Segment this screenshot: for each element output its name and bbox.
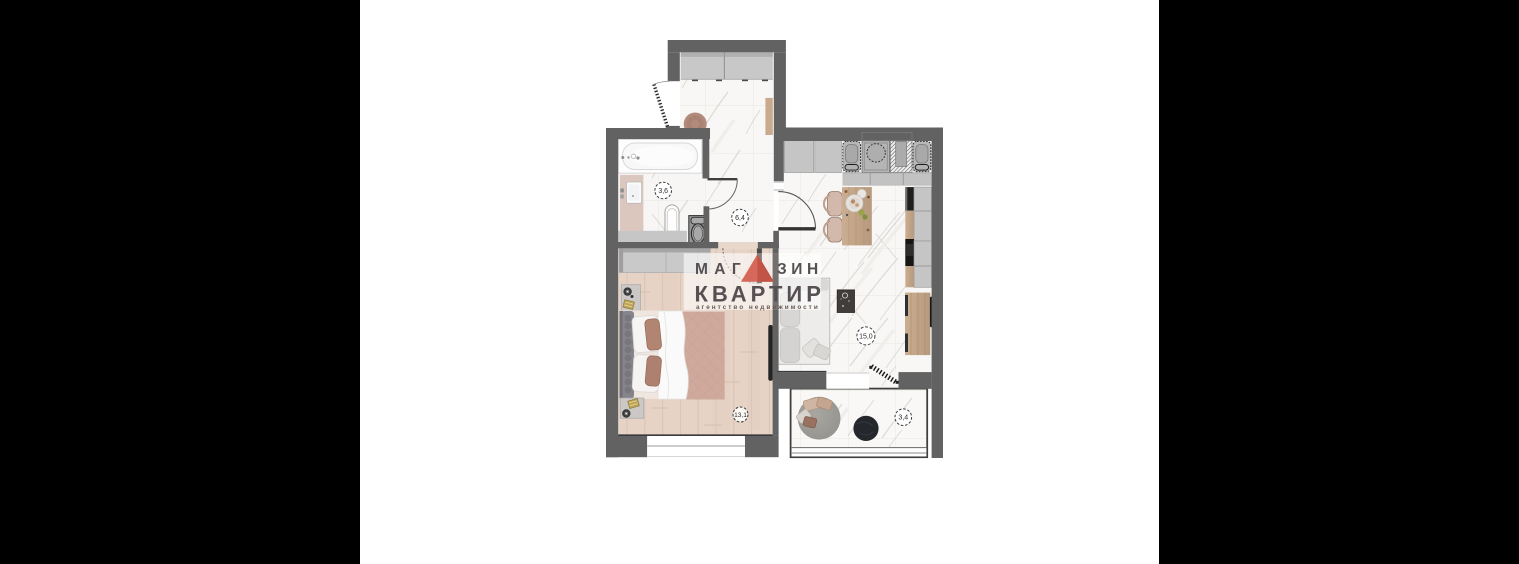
svg-text:3,6: 3,6 [658,188,668,195]
svg-text:15,0: 15,0 [859,334,873,341]
svg-text:КВАРТИР: КВАРТИР [695,282,825,307]
svg-text:6,4: 6,4 [735,215,745,222]
svg-text:13,1: 13,1 [734,412,747,419]
svg-text:МАГ: МАГ [695,261,747,278]
svg-text:ЗИН: ЗИН [777,261,823,278]
svg-text:агентство недвижимости: агентство недвижимости [696,304,820,311]
svg-text:3,4: 3,4 [898,415,908,422]
